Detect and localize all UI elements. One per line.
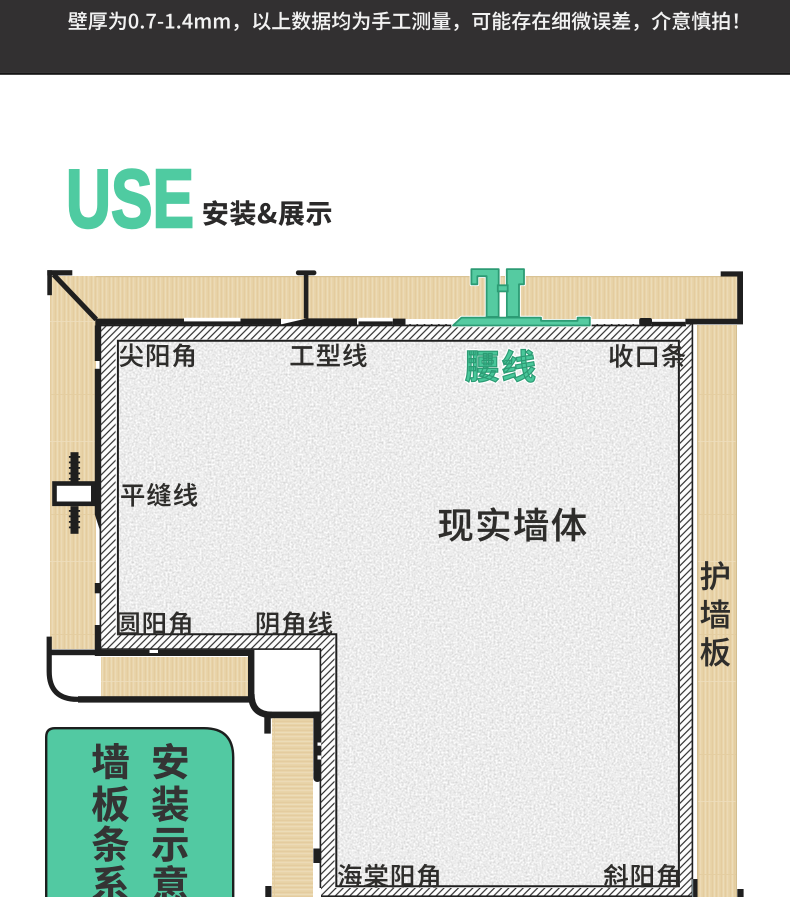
svg-text:USE: USE (66, 152, 194, 245)
